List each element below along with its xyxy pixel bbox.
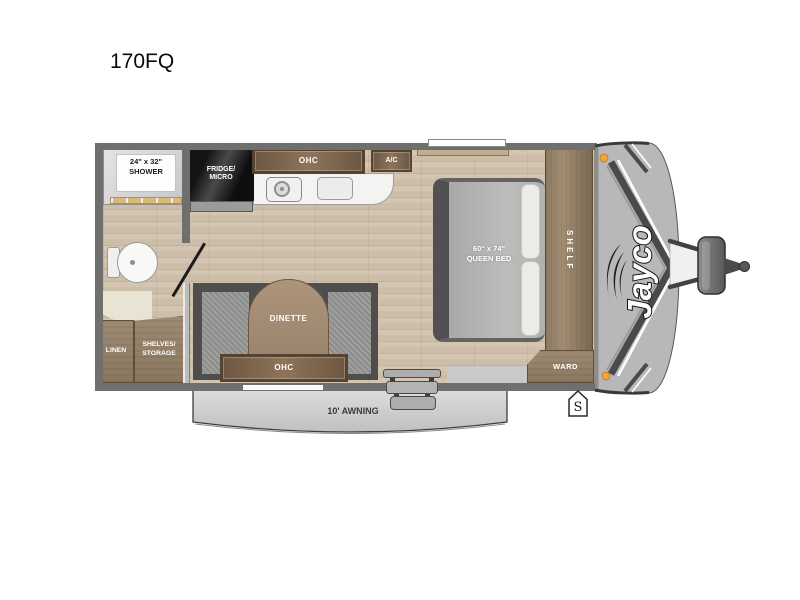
- fridge-micro: FRIDGE/ MICRO: [188, 147, 254, 201]
- wall-top: [95, 143, 597, 150]
- bathroom-partition-wall: [182, 150, 190, 243]
- entry-landing: [447, 366, 539, 383]
- entry-step: [390, 396, 436, 410]
- overhead-cabinet-kitchen: OHC: [252, 148, 365, 174]
- ohc-dinette-label: OHC: [274, 363, 293, 373]
- linen-cabinet: LINEN: [98, 320, 134, 383]
- bedroom-window: [428, 139, 506, 147]
- sink-icon: [317, 177, 353, 200]
- jayco-logo: Jayco: [621, 225, 658, 319]
- pillow: [521, 261, 540, 336]
- fridge-base-cabinet: [190, 201, 253, 212]
- shower-text: SHOWER: [104, 167, 188, 177]
- model-title: 170FQ: [110, 50, 174, 74]
- hitch-ball: [740, 262, 750, 272]
- ohc-kitchen-label: OHC: [299, 156, 318, 166]
- entry-step: [383, 369, 441, 378]
- hitch: [670, 237, 750, 294]
- dinette-partition-wall: [183, 283, 190, 383]
- shower-label: 24" x 32" SHOWER: [104, 157, 188, 177]
- floorplan-canvas: 170FQ 24" x 32" SHOWER LINEN SHELVES/ ST…: [0, 0, 800, 600]
- shower-size-text: 24" x 32": [104, 157, 188, 167]
- bed-text: QUEEN BED: [433, 254, 545, 264]
- shelves-label-line2: STORAGE: [142, 350, 176, 358]
- entry-step: [386, 381, 438, 394]
- wardrobe: WARD: [527, 350, 594, 383]
- fridge-label-line1: FRIDGE/: [207, 166, 235, 174]
- dinette-label: DINETTE: [248, 314, 329, 324]
- ac-label: A/C: [385, 157, 397, 165]
- shelves-label: SHELVES/ STORAGE: [142, 341, 176, 357]
- s-marker-letter: S: [574, 400, 583, 415]
- shelves-storage-cabinet: SHELVES/ STORAGE: [134, 316, 184, 383]
- burner-center-dot: [280, 187, 284, 191]
- coupler: [724, 258, 741, 275]
- toilet-flush-dot: [130, 260, 135, 265]
- wall-bottom: [95, 383, 597, 391]
- toilet-icon: [117, 242, 158, 283]
- cap-left-edge: [595, 144, 599, 392]
- awning-label: 10' AWNING: [327, 406, 378, 416]
- shower: 24" x 32" SHOWER: [103, 148, 187, 205]
- clearance-light-top: [600, 154, 608, 162]
- shower-threshold: [110, 197, 182, 204]
- fridge-label: FRIDGE/ MICRO: [207, 166, 235, 183]
- bed-label: 60" x 74" QUEEN BED: [433, 244, 545, 264]
- s-marker: S: [567, 390, 589, 418]
- entry-door-window: [243, 385, 323, 390]
- ward-label: WARD: [553, 362, 578, 371]
- range-icon: [266, 177, 302, 202]
- wall-rear: [95, 143, 103, 391]
- ac-unit: A/C: [371, 150, 412, 172]
- shelf-cabinet: SHELF: [545, 148, 593, 354]
- front-cap: Jayco: [591, 136, 759, 400]
- fridge-label-line2: MICRO: [207, 174, 235, 182]
- overhead-cabinet-dinette: OHC: [220, 354, 348, 382]
- linen-label: LINEN: [106, 347, 126, 355]
- shelf-label: SHELF: [564, 230, 574, 271]
- shelves-label-line1: SHELVES/: [142, 341, 176, 349]
- bed-size-text: 60" x 74": [433, 244, 545, 254]
- clearance-light-bottom: [602, 372, 610, 380]
- awning: 10' AWNING: [188, 386, 512, 444]
